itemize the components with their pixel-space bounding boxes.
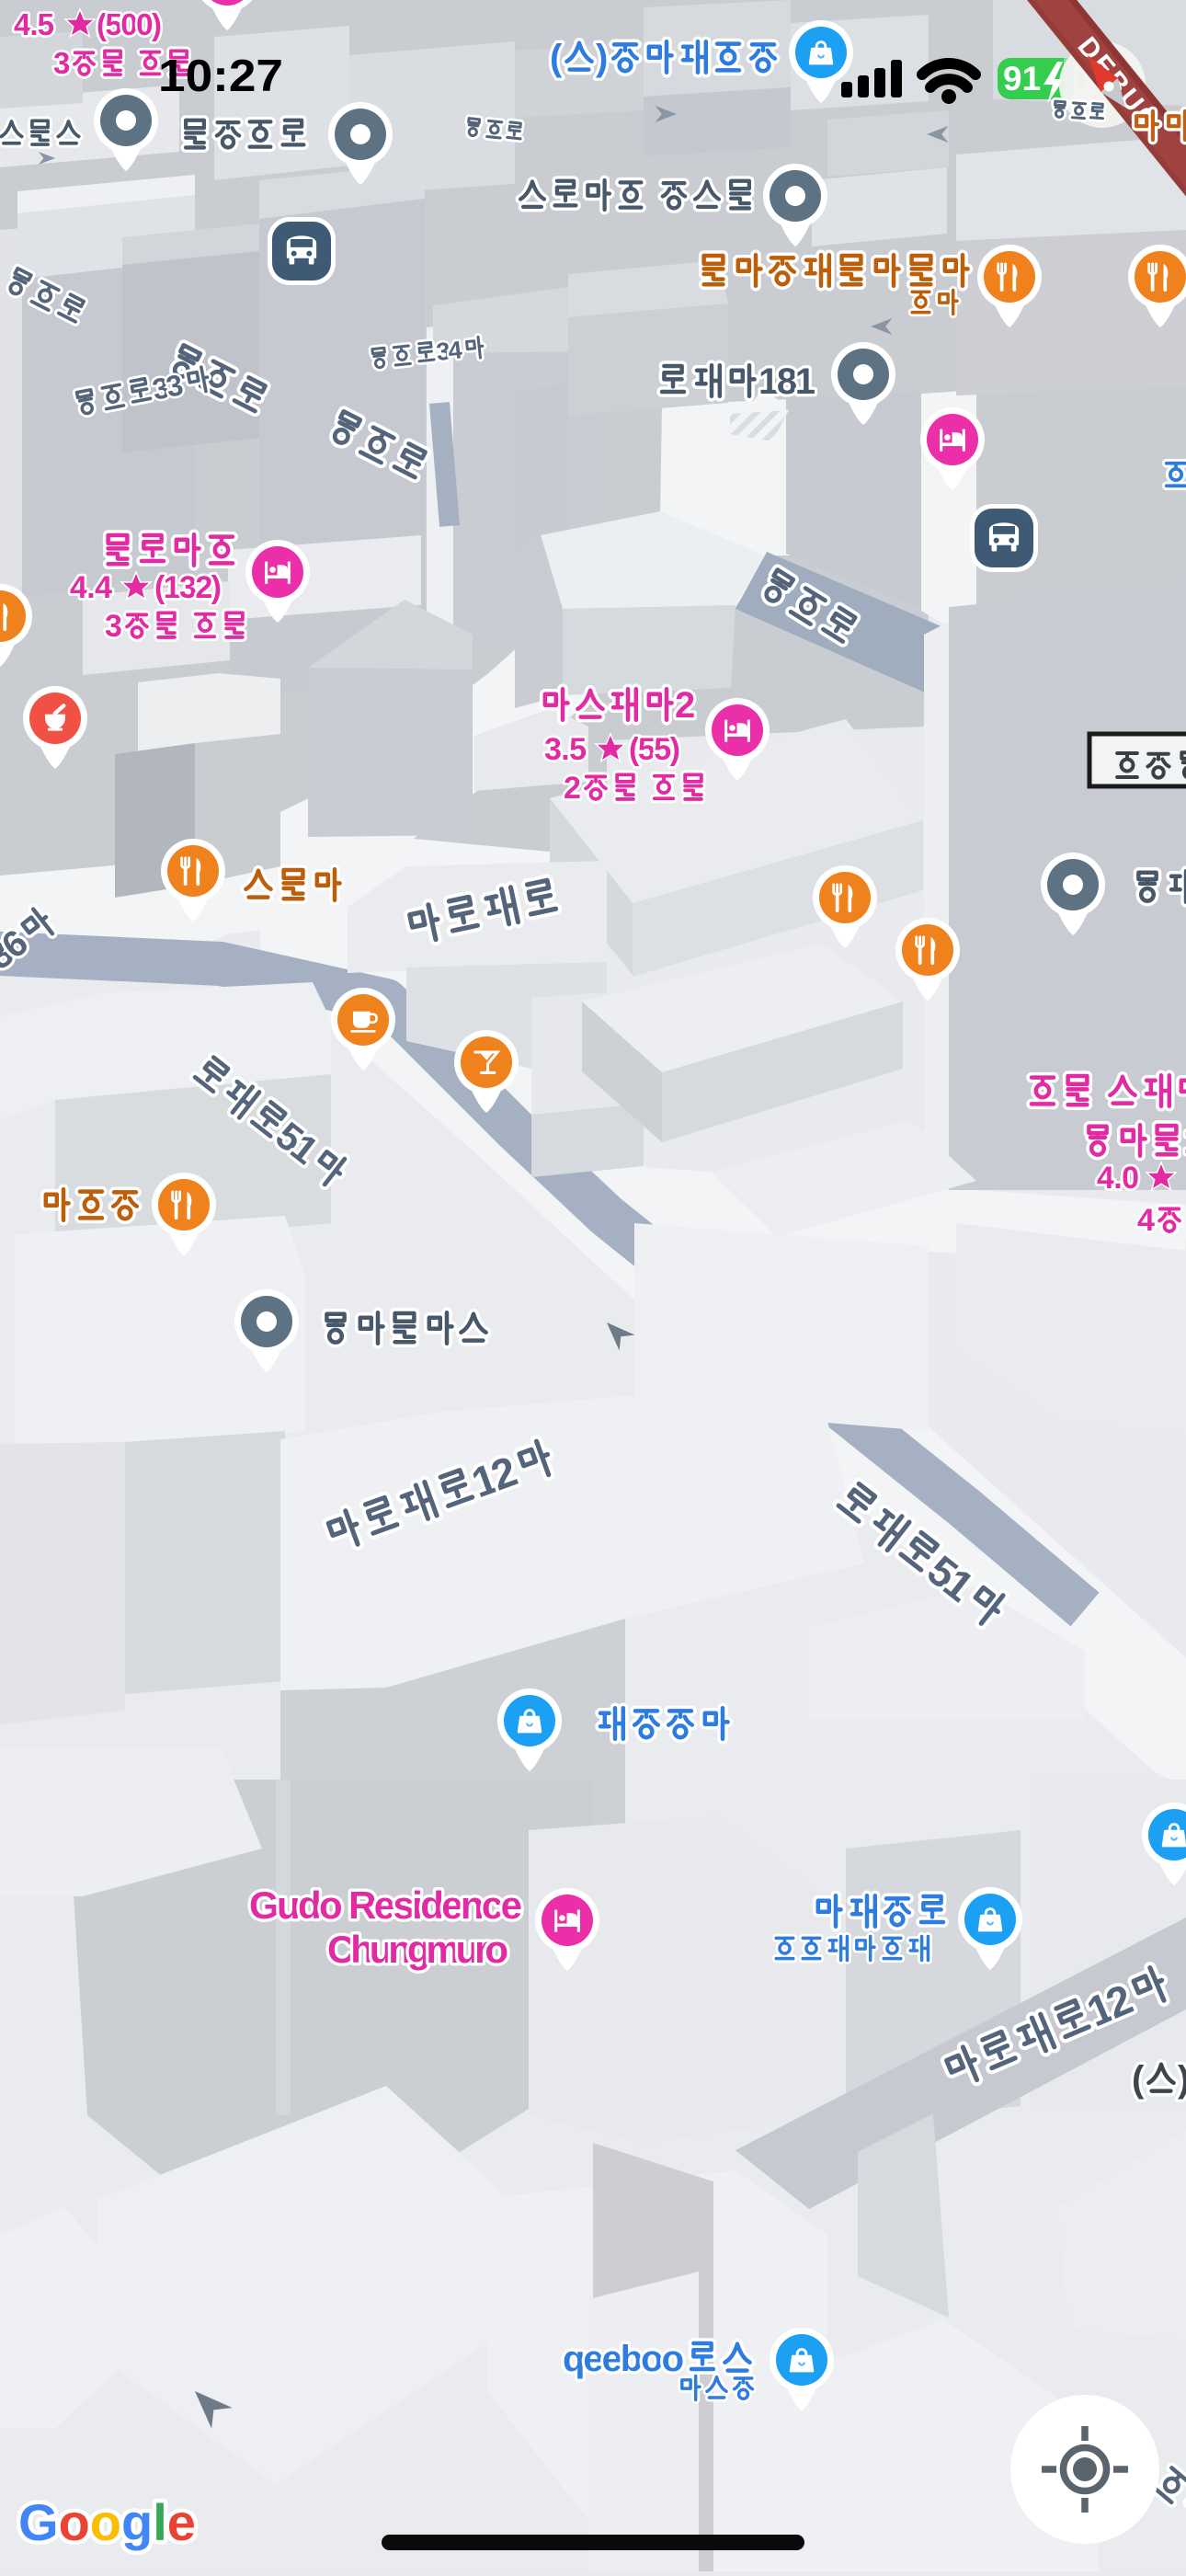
svg-text:Chungmuro: Chungmuro [327, 1928, 508, 1971]
svg-text:(: ( [550, 38, 563, 78]
svg-text:3: 3 [105, 609, 122, 644]
svg-text:2: 2 [675, 685, 695, 726]
svg-text:(55): (55) [629, 732, 680, 767]
svg-text:181: 181 [758, 361, 815, 402]
svg-text:4: 4 [1137, 1203, 1155, 1238]
svg-text:91: 91 [1003, 60, 1041, 97]
svg-text:4.4: 4.4 [70, 570, 112, 605]
svg-text:(: ( [1132, 2059, 1145, 2100]
svg-text:(132): (132) [154, 570, 222, 605]
svg-text:4.0: 4.0 [1097, 1161, 1139, 1196]
svg-text:33: 33 [150, 368, 186, 406]
svg-text:qeeboo: qeeboo [563, 2339, 684, 2379]
svg-text:Google: Google [18, 2493, 196, 2551]
svg-text:3.5: 3.5 [544, 732, 587, 767]
svg-text:4.5: 4.5 [14, 7, 54, 41]
svg-text:2: 2 [564, 771, 581, 806]
svg-text:): ) [1178, 2059, 1186, 2100]
svg-text:10:27: 10:27 [158, 52, 283, 101]
svg-text:): ) [596, 38, 608, 78]
svg-text:(500): (500) [97, 7, 162, 41]
svg-text:3: 3 [53, 46, 70, 80]
svg-text:Gudo Residence: Gudo Residence [249, 1883, 522, 1927]
svg-text:34: 34 [435, 336, 463, 366]
